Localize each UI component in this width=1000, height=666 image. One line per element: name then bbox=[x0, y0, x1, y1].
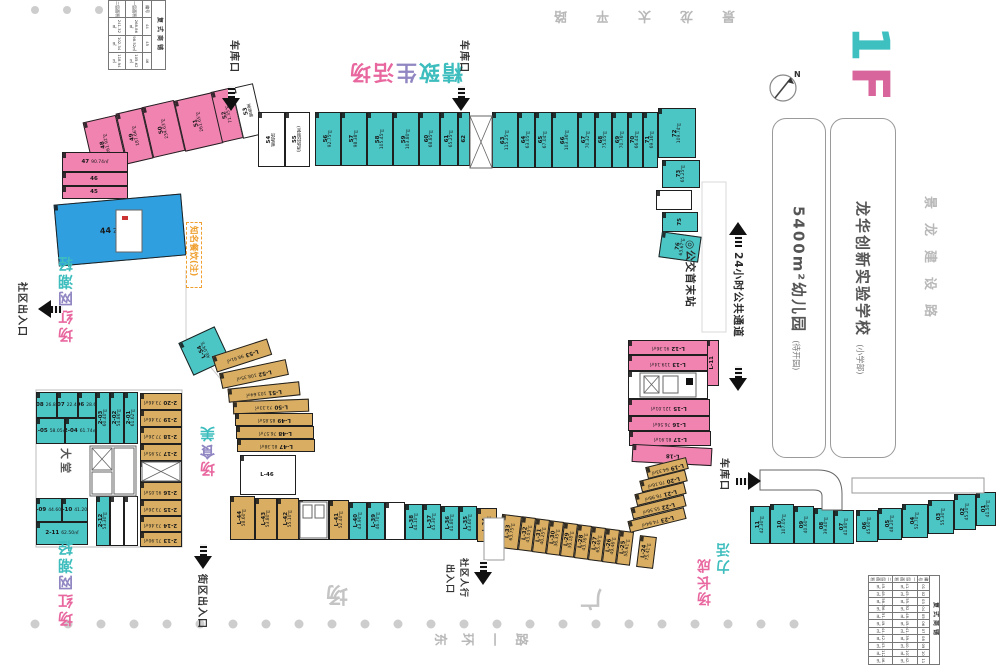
unit-04: 0452.70㎡ bbox=[902, 504, 928, 538]
unit-L-38: L-3844.10㎡ bbox=[405, 504, 423, 540]
unit-06: 0645.60㎡ bbox=[856, 510, 878, 542]
unit-2-20: 2-2073.46㎡ bbox=[140, 393, 182, 410]
unit-L-41: L-4152.40㎡ bbox=[329, 500, 349, 540]
unit-L-44: L-4458.60㎡ bbox=[230, 496, 255, 540]
unit-L-40: L-4043.90㎡ bbox=[349, 502, 367, 540]
service-space bbox=[628, 371, 708, 399]
unit-2-12: 2-1253.30㎡ bbox=[96, 496, 110, 546]
unit-73: 7365.25㎡ bbox=[662, 160, 700, 188]
floor-logo-f: F bbox=[840, 66, 900, 106]
unit-2-14: 2-1473.46㎡ bbox=[140, 516, 182, 532]
floor-plan: 5400m²幼儿园 (待开园) 龙华创新实验学校 (小学部) 48261.92㎡… bbox=[0, 0, 1000, 666]
unit-2-02: 2-0254.86㎡ bbox=[110, 392, 124, 444]
entrance-street: 街区出入口 bbox=[196, 574, 211, 638]
unit-54: 54邮政所 bbox=[258, 112, 285, 167]
unit-L-43: L-4353.80㎡ bbox=[255, 498, 277, 540]
unit-L-24: L-2475.41㎡ bbox=[636, 535, 657, 569]
garage-arrow-right bbox=[736, 472, 761, 490]
unit-61: 6165.25㎡ bbox=[440, 112, 458, 166]
unit-68: 6875.05㎡ bbox=[595, 112, 612, 168]
road-bottom: 东环一路 bbox=[428, 630, 536, 649]
entrance-garage-top-left: 车库口 bbox=[228, 40, 243, 86]
passage-arrow-up bbox=[729, 222, 747, 247]
unit-2-16: 2-1691.05㎡ bbox=[140, 482, 182, 500]
unit-46: 46 bbox=[62, 172, 128, 186]
service-space bbox=[110, 496, 124, 546]
unit-L-15: L-15121.01㎡ bbox=[628, 399, 710, 416]
compass-icon: N bbox=[764, 66, 806, 108]
service-space bbox=[656, 190, 692, 210]
unit-L-42: L-4255.10㎡ bbox=[277, 498, 299, 540]
road-top: 景龙太平路 bbox=[515, 8, 735, 27]
compass-n: N bbox=[794, 70, 801, 79]
unit-L-48: L-4876.57㎡ bbox=[236, 426, 314, 439]
unit-66: 66103.36㎡ bbox=[552, 112, 578, 168]
unit-64: 6463.05㎡ bbox=[518, 112, 535, 168]
pedestrian-arrow-down bbox=[474, 560, 492, 585]
entrance-garage-right: 车库口 bbox=[718, 458, 733, 502]
unit-L-49: L-4985.85㎡ bbox=[235, 413, 313, 426]
unit-09: 0940.60㎡ bbox=[794, 506, 814, 544]
unit-11: 1142.30㎡ bbox=[750, 506, 770, 544]
entrance-pedestrian-line1: 社区人行 bbox=[458, 558, 471, 608]
unit-44: 44268.86㎡ bbox=[54, 194, 187, 267]
unit-56: 5692.75㎡ bbox=[315, 112, 341, 166]
street-arrow-down bbox=[194, 544, 212, 569]
unit-L-35: L-3543.60㎡ bbox=[459, 506, 477, 540]
bus-terminus-label: ◎公交首末站 bbox=[683, 240, 698, 336]
zone-food: 美食场 bbox=[200, 424, 215, 477]
service-space bbox=[140, 461, 182, 482]
unit-59: 59103.80㎡ bbox=[393, 112, 419, 166]
unit-01: 0141.50㎡ bbox=[976, 492, 996, 526]
community-arrow-left bbox=[38, 300, 63, 318]
unit-55: 55(消防控制室) bbox=[285, 112, 310, 167]
unit-2-19: 2-1973.46㎡ bbox=[140, 410, 182, 427]
zone-boutique: 精致生活场 bbox=[348, 58, 463, 88]
unit-60: 6068.85㎡ bbox=[419, 112, 440, 166]
unit-45: 45 bbox=[62, 186, 128, 199]
unit-72: 72109.74㎡ bbox=[658, 108, 696, 158]
service-space bbox=[385, 502, 405, 540]
floor-logo: 1F bbox=[843, 26, 898, 106]
garage-arrow-down-1 bbox=[222, 86, 240, 111]
garage-arrow-down-2 bbox=[452, 86, 470, 111]
plaza-char-chang: 场 bbox=[326, 580, 348, 612]
unit-02: 0245.20㎡ bbox=[954, 494, 976, 530]
floor-logo-1: 1 bbox=[840, 26, 900, 66]
unit-2-01: 2-0161.62㎡ bbox=[124, 392, 138, 444]
unit-70: 7066.44㎡ bbox=[628, 112, 643, 168]
unit-07: 0741.80㎡ bbox=[834, 510, 854, 544]
duplex-table-small: 复式商铺编号444546一层面积268.86㎡98.52㎡105.62㎡二层面积… bbox=[108, 0, 166, 70]
unit-L-34: L-3448.20㎡ bbox=[477, 508, 497, 542]
unit-58: 58105.45㎡ bbox=[367, 112, 393, 166]
unit-L-50: L-5073.33㎡ bbox=[233, 399, 309, 415]
unit-63: 63115.25㎡ bbox=[492, 112, 518, 168]
unit-65: 6567.04㎡ bbox=[535, 112, 552, 168]
unit-67: 6770.32㎡ bbox=[578, 112, 595, 168]
passage-label: 24小时公共通道 bbox=[731, 252, 746, 364]
unit-L-46: L-46 bbox=[240, 455, 296, 495]
unit-57: 5798.38㎡ bbox=[341, 112, 367, 166]
unit-2-09: 2-0944.60㎡ bbox=[36, 498, 62, 522]
unit-03: 0355.30㎡ bbox=[928, 500, 954, 534]
unit-2-15: 2-1573.26㎡ bbox=[140, 500, 182, 516]
unit-05: 0548.20㎡ bbox=[878, 508, 902, 540]
zone-vitality-a: 活力 bbox=[716, 540, 730, 573]
restaurant-callout: 知名餐饮(注) bbox=[186, 222, 202, 288]
unit-2-10: 2-1041.20㎡ bbox=[62, 498, 88, 522]
unit-2-07: 2-0722.40㎡ bbox=[57, 392, 78, 418]
unit-L-39: L-3946.70㎡ bbox=[367, 502, 385, 540]
entrance-community: 社区出入口 bbox=[16, 282, 31, 346]
unit-2-03: 2-0360.40㎡ bbox=[96, 392, 110, 444]
unit-L-16: L-1676.56㎡ bbox=[628, 416, 710, 431]
plaza-char-guang: 广 bbox=[580, 584, 602, 616]
unit-2-05: 2-0558.05㎡ bbox=[36, 418, 65, 444]
unit-08: 0839.40㎡ bbox=[814, 508, 834, 544]
unit-2-06: 2-0628.62㎡ bbox=[78, 392, 96, 418]
unit-75: 75 bbox=[662, 212, 698, 232]
entrance-pedestrian-line2: 出入口 bbox=[444, 564, 457, 604]
unit-L-33: L-3363.75㎡ bbox=[498, 514, 522, 550]
unit-L-36: L-3641.80㎡ bbox=[441, 506, 459, 540]
zone-trendy-top: 轻潮网红场 bbox=[58, 254, 73, 342]
unit-2-13: 2-1371.90㎡ bbox=[140, 532, 182, 547]
lobby-label: 大堂 bbox=[58, 448, 74, 492]
unit-69: 6970.76㎡ bbox=[612, 112, 628, 168]
unit-L-13: L-13119.14㎡ bbox=[628, 355, 708, 371]
unit-10: 10107.05㎡ bbox=[770, 504, 794, 544]
unit-L-37: L-3745.30㎡ bbox=[423, 504, 441, 540]
unit-L-47: L-4781.38㎡ bbox=[237, 439, 315, 452]
unit-47: 4790.74㎡ bbox=[62, 152, 128, 172]
duplex-table-large: 复式商铺编号0102030405060708091011一层面积41.50㎡45… bbox=[868, 575, 940, 665]
unit-2-18: 2-1877.26㎡ bbox=[140, 427, 182, 444]
service-space bbox=[124, 496, 138, 546]
unit-L-12: L-1291.36㎡ bbox=[628, 340, 708, 355]
zone-trendy-bottom: 轻潮网红场 bbox=[58, 538, 73, 626]
passage-arrow-down bbox=[729, 366, 747, 391]
unit-2-17: 2-1775.95㎡ bbox=[140, 444, 182, 461]
entrance-garage-top-right: 车库口 bbox=[458, 40, 473, 86]
road-right: 景龙建设路 bbox=[922, 196, 941, 336]
unit-2-04: 2-0461.74㎡ bbox=[65, 418, 96, 444]
zone-vitality-b: 成长场 bbox=[697, 556, 711, 606]
service-space bbox=[299, 500, 329, 540]
unit-2-08: 2-0826.84㎡ bbox=[36, 392, 57, 418]
unit-71: 7169.16㎡ bbox=[643, 112, 658, 168]
unit-62: 62 bbox=[458, 112, 470, 166]
